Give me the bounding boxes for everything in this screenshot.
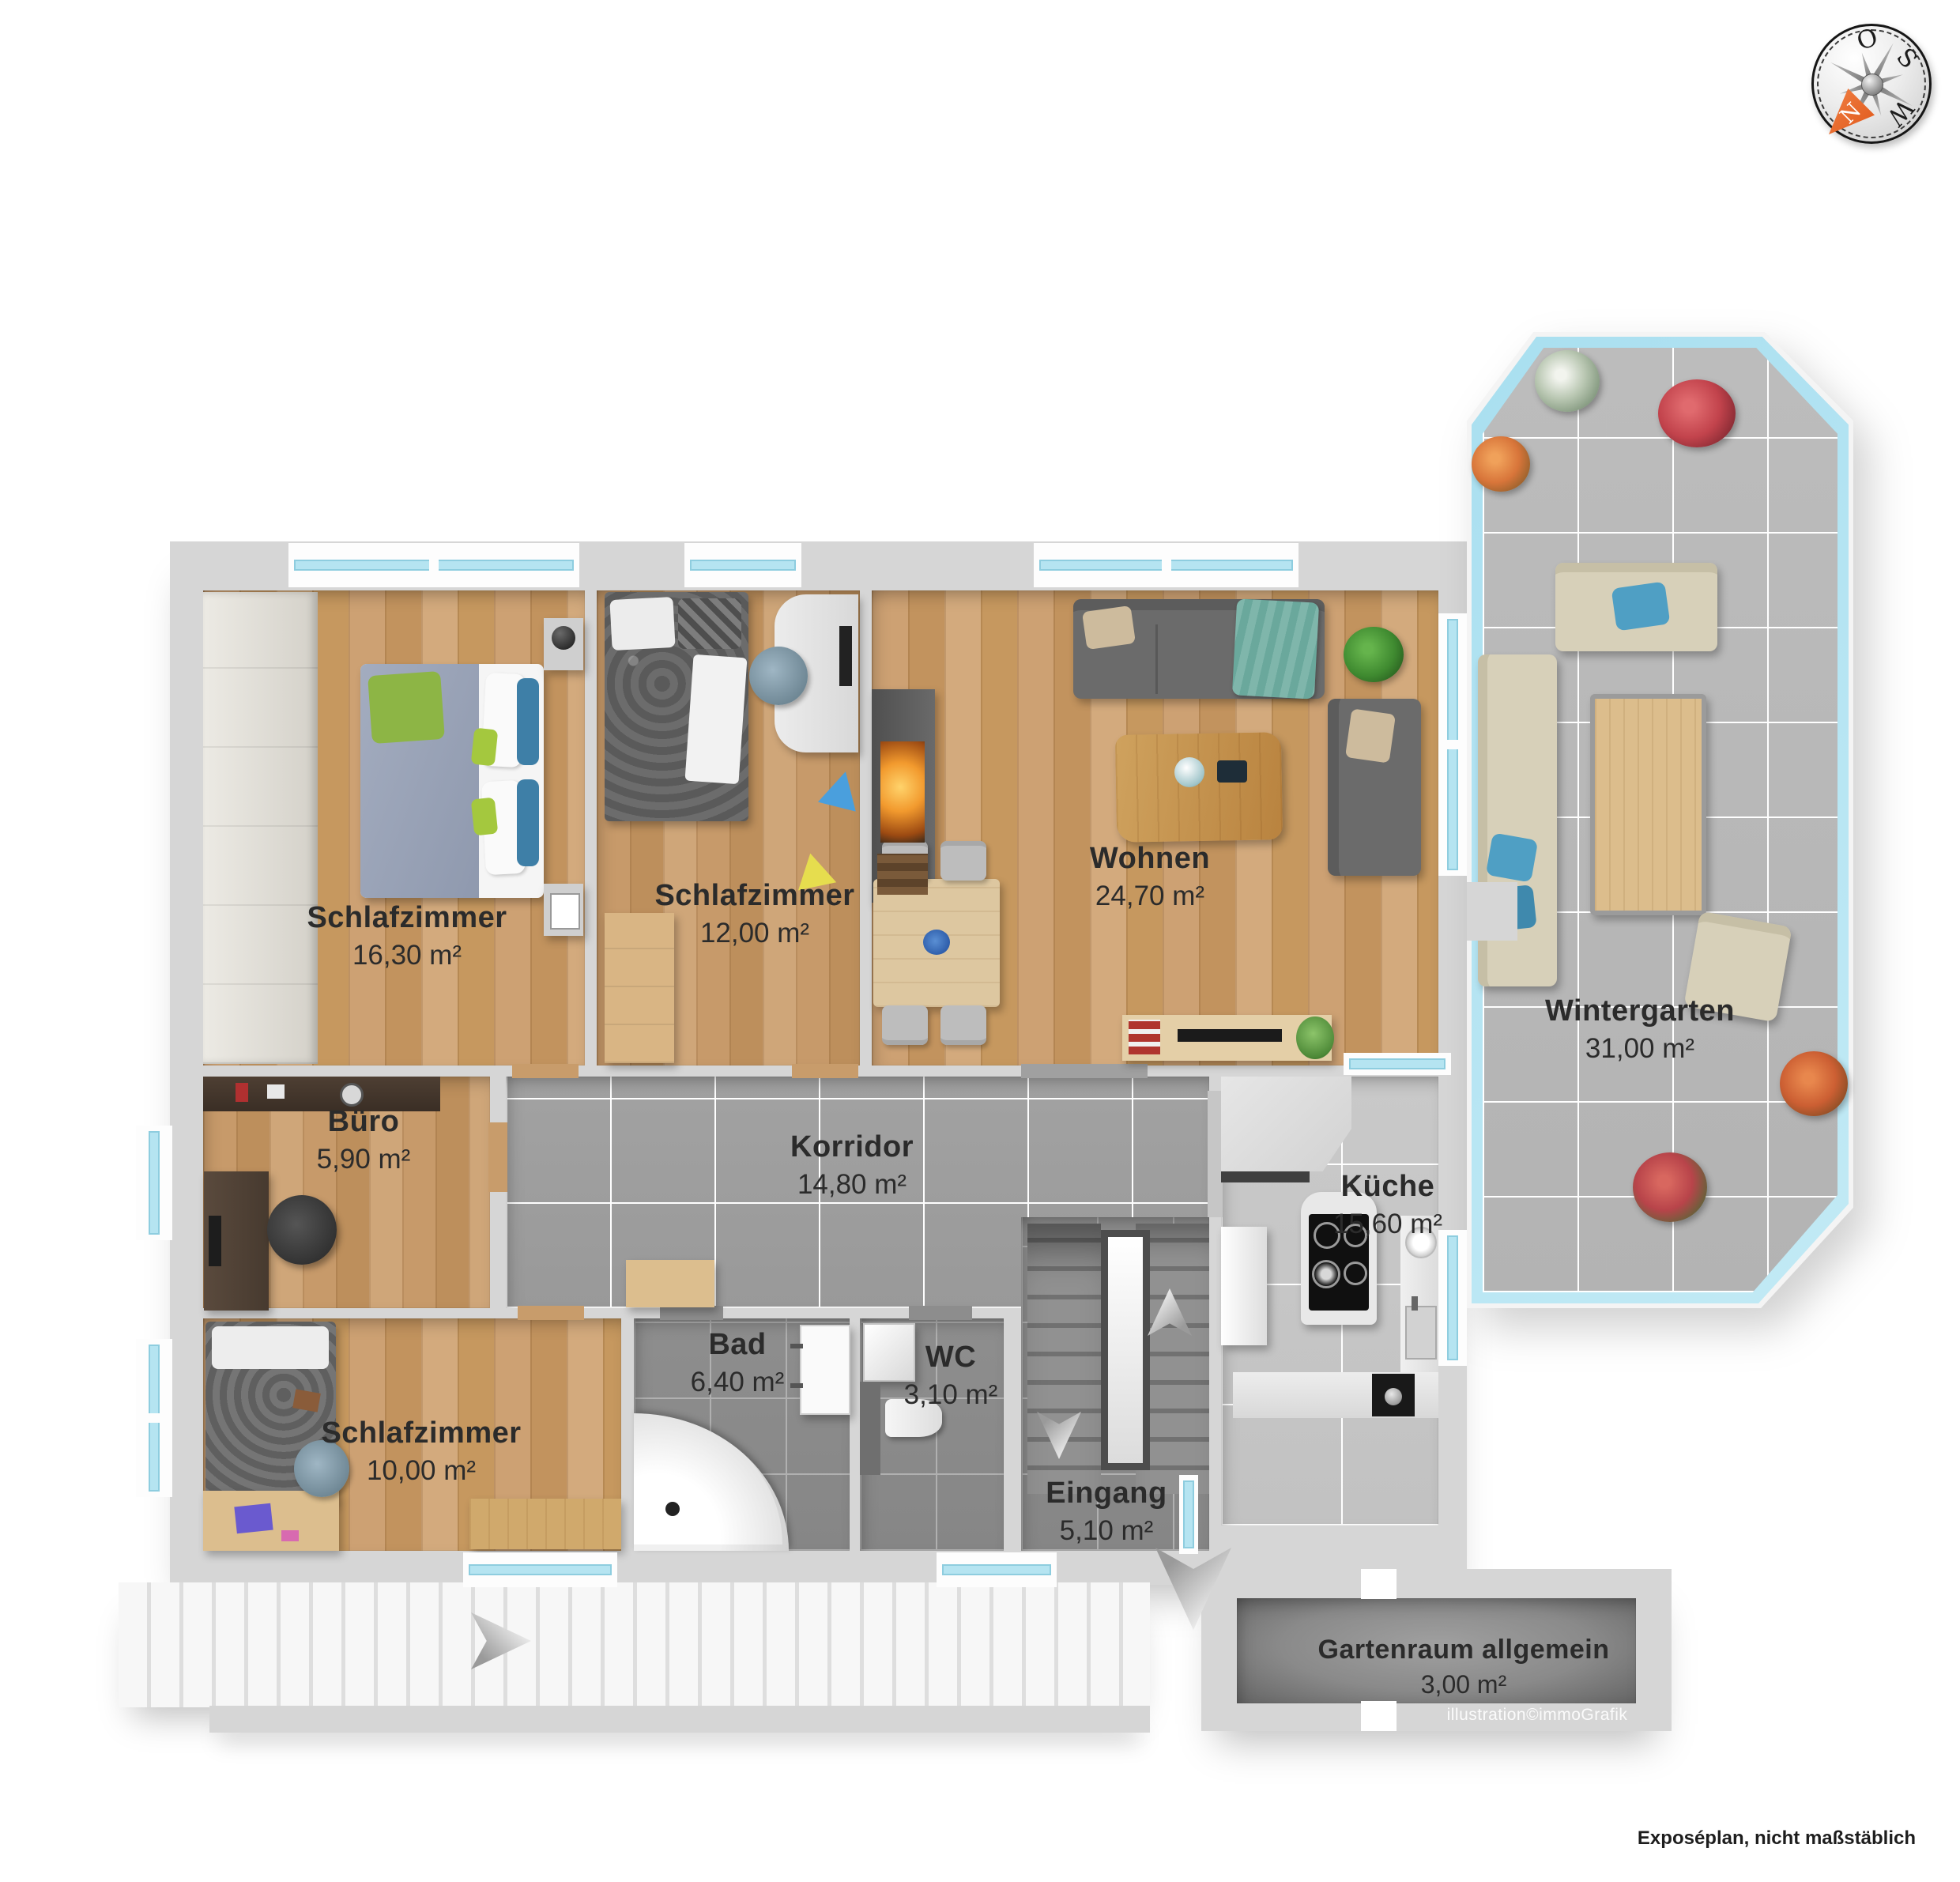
- window: [1179, 1475, 1198, 1554]
- window: [1034, 543, 1298, 587]
- plant-hanging: [1296, 1016, 1334, 1059]
- monitor: [209, 1216, 221, 1266]
- stair-handrail: [1101, 1230, 1150, 1470]
- window: [684, 543, 801, 587]
- room-name: Eingang: [1046, 1477, 1167, 1511]
- room-name: Schlafzimmer: [654, 879, 854, 913]
- pillow: [212, 1326, 329, 1369]
- burner: [1344, 1262, 1367, 1285]
- bathtub-drain: [665, 1502, 680, 1516]
- window: [136, 1126, 172, 1240]
- pillow-blue: [517, 678, 539, 765]
- room-area: 24,70 m²: [1090, 881, 1210, 912]
- pillow: [609, 597, 675, 651]
- faucet: [1412, 1296, 1418, 1311]
- plant-green: [1344, 627, 1404, 682]
- laptop: [234, 1503, 273, 1534]
- door-opening: [1361, 1569, 1396, 1599]
- room-name: Schlafzimmer: [307, 901, 507, 935]
- entrance-door: [937, 1552, 1057, 1587]
- garden-table: [1590, 694, 1706, 915]
- kitchen-sink: [1405, 1306, 1437, 1360]
- shelf-items: [236, 1083, 248, 1102]
- cushion-green: [471, 728, 499, 767]
- dining-chair: [882, 1005, 928, 1045]
- window: [288, 543, 579, 587]
- window: [136, 1339, 172, 1497]
- floor-plan: Schlafzimmer 16,30 m² Schlafzimmer 12,00…: [0, 0, 1960, 1882]
- door-opening: [1361, 1701, 1396, 1731]
- terrace-deck: [119, 1582, 1150, 1707]
- room-area: 3,10 m²: [904, 1379, 998, 1411]
- shelf-items: [267, 1084, 285, 1099]
- room-area: 5,10 m²: [1046, 1515, 1167, 1547]
- desk-item-pink: [281, 1530, 299, 1541]
- kitchen-shelf: [1221, 1171, 1310, 1182]
- doormat-wood: [626, 1260, 714, 1307]
- kitchen-counter: [1221, 1077, 1351, 1171]
- door-opening: [512, 1064, 579, 1078]
- room-name: Küche: [1333, 1170, 1442, 1204]
- pillow-beige: [1082, 605, 1136, 650]
- office-chair: [267, 1195, 337, 1265]
- room-label-schlafzimmer-1: Schlafzimmer 16,30 m²: [307, 901, 507, 971]
- room-area: 31,00 m²: [1545, 1033, 1735, 1065]
- door-landing: [1467, 882, 1517, 941]
- wooden-bench: [469, 1499, 621, 1549]
- staircase-flight: [1027, 1224, 1101, 1494]
- pillow-beige: [1345, 708, 1396, 763]
- room-label-wc: WC 3,10 m²: [904, 1341, 998, 1411]
- dining-chair: [940, 1005, 986, 1045]
- room-label-buero: Büro 5,90 m²: [317, 1105, 411, 1175]
- room-area: 15,60 m²: [1333, 1209, 1442, 1240]
- room-area: 14,80 m²: [790, 1169, 914, 1201]
- coffee-table: [1115, 732, 1283, 843]
- compass-icon: O S W N: [1811, 24, 1932, 144]
- room-label-schlafzimmer-2: Schlafzimmer 12,00 m²: [654, 879, 854, 949]
- window: [463, 1552, 617, 1587]
- room-name: WC: [904, 1341, 998, 1375]
- wall-clock: [340, 1083, 364, 1107]
- fire: [880, 741, 925, 843]
- room-area: 12,00 m²: [654, 918, 854, 949]
- room-name: Wintergarten: [1545, 994, 1735, 1028]
- dining-chair: [940, 841, 986, 881]
- faucet: [790, 1344, 803, 1348]
- coffee-machine-dial: [1385, 1388, 1402, 1405]
- wardrobe: [203, 592, 318, 1064]
- room-name: Bad: [691, 1328, 785, 1362]
- room-label-korridor: Korridor 14,80 m²: [790, 1130, 914, 1201]
- door-opening: [1208, 1091, 1223, 1217]
- footer-disclaimer: Exposéplan, nicht maßstäblich: [1638, 1827, 1916, 1850]
- room-label-eingang: Eingang 5,10 m²: [1046, 1477, 1167, 1547]
- monitor: [839, 626, 852, 686]
- room-label-schlafzimmer-3: Schlafzimmer 10,00 m²: [321, 1416, 521, 1487]
- partition-wall: [860, 1382, 880, 1475]
- plant-white-flowers: [1535, 350, 1600, 412]
- cushion: [1611, 582, 1671, 632]
- cushion: [1486, 832, 1538, 882]
- fridge: [1221, 1227, 1267, 1345]
- room-area: 5,90 m²: [317, 1144, 411, 1175]
- tv: [1178, 1029, 1282, 1042]
- plant-red-flowers: [1658, 379, 1736, 447]
- room-name: Korridor: [790, 1130, 914, 1164]
- firewood: [877, 854, 928, 895]
- compass-center: [1861, 74, 1883, 96]
- door-opening: [518, 1306, 584, 1320]
- window: [1344, 1053, 1451, 1075]
- bed-blanket-green: [367, 671, 445, 744]
- room-label-kueche: Küche 15,60 m²: [1333, 1170, 1442, 1240]
- room-area: 3,00 m²: [1317, 1670, 1609, 1699]
- room-area: 16,30 m²: [307, 940, 507, 971]
- table-lamp: [552, 626, 575, 650]
- room-label-wohnen: Wohnen 24,70 m²: [1090, 842, 1210, 912]
- vase: [1174, 757, 1204, 787]
- plant-red-flowers: [1633, 1152, 1707, 1222]
- burner: [1312, 1260, 1340, 1288]
- sofa-seam: [1155, 624, 1158, 694]
- door-opening: [660, 1306, 723, 1320]
- flowers-blue: [923, 930, 950, 955]
- illustration-credit: illustration©immoGrafik: [1447, 1706, 1628, 1725]
- pillow-patterned: [678, 598, 741, 649]
- magazines: [1129, 1020, 1160, 1054]
- window: [1438, 1230, 1467, 1366]
- plant-orange-flowers: [1472, 436, 1530, 492]
- faucet: [790, 1383, 803, 1388]
- double-sink: [800, 1325, 850, 1415]
- room-label-gartenraum: Gartenraum allgemein 3,00 m²: [1317, 1635, 1609, 1699]
- room-area: 6,40 m²: [691, 1367, 785, 1398]
- room-area: 10,00 m²: [321, 1455, 521, 1487]
- window: [1438, 613, 1467, 876]
- cushion-green: [471, 798, 499, 836]
- remote: [1217, 760, 1247, 783]
- tablet: [550, 893, 580, 930]
- room-name: Wohnen: [1090, 842, 1210, 876]
- door-opening: [909, 1306, 972, 1320]
- plant-orange-flowers: [1780, 1051, 1848, 1116]
- room-label-bad: Bad 6,40 m²: [691, 1328, 785, 1398]
- room-name: Büro: [317, 1105, 411, 1139]
- throw-teal: [1232, 598, 1319, 699]
- door-opening: [1021, 1064, 1148, 1078]
- pillow-blue: [517, 779, 539, 866]
- door-opening: [792, 1064, 858, 1078]
- terrace-edge: [209, 1706, 1150, 1733]
- room-label-wintergarten: Wintergarten 31,00 m²: [1545, 994, 1735, 1065]
- room-name: Gartenraum allgemein: [1317, 1635, 1609, 1665]
- desk-chair: [749, 647, 808, 705]
- bed-sheet: [685, 654, 748, 784]
- door-opening: [488, 1122, 507, 1192]
- room-name: Schlafzimmer: [321, 1416, 521, 1450]
